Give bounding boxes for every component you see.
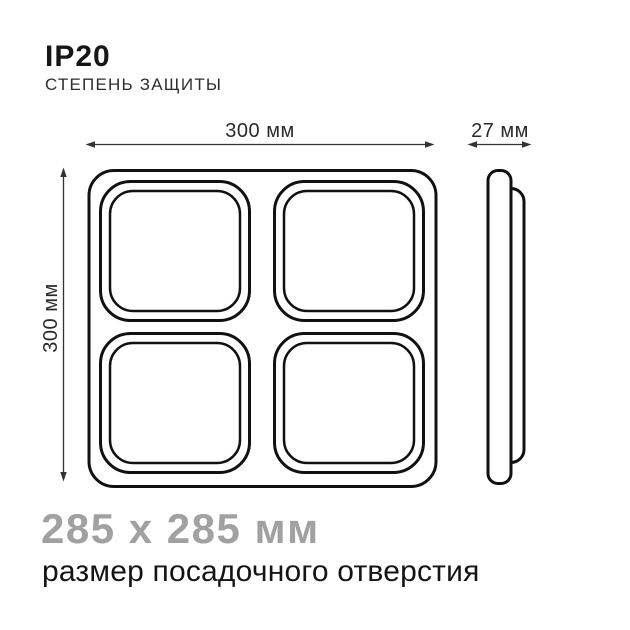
height-dimension-label: 300 мм	[41, 283, 61, 352]
width-arrow	[86, 141, 435, 147]
front-view	[89, 171, 436, 487]
module-inner-top-left	[110, 191, 240, 311]
depth-arrow	[468, 141, 532, 147]
module-inner-bottom-right	[284, 343, 414, 463]
depth-dimension-label: 27 мм	[440, 121, 560, 141]
side-front-outline	[488, 171, 511, 484]
module-inner-top-right	[284, 191, 414, 311]
cutout-caption: размер посадочного отверстия	[42, 554, 480, 590]
module-inner-bottom-left	[110, 343, 240, 463]
width-dimension-label: 300 мм	[185, 121, 335, 141]
cutout-size: 285 x 285 мм	[41, 506, 320, 552]
product-spec-sheet: IP20 СТЕПЕНЬ ЗАЩИТЫ	[0, 0, 630, 630]
side-view	[488, 171, 524, 484]
